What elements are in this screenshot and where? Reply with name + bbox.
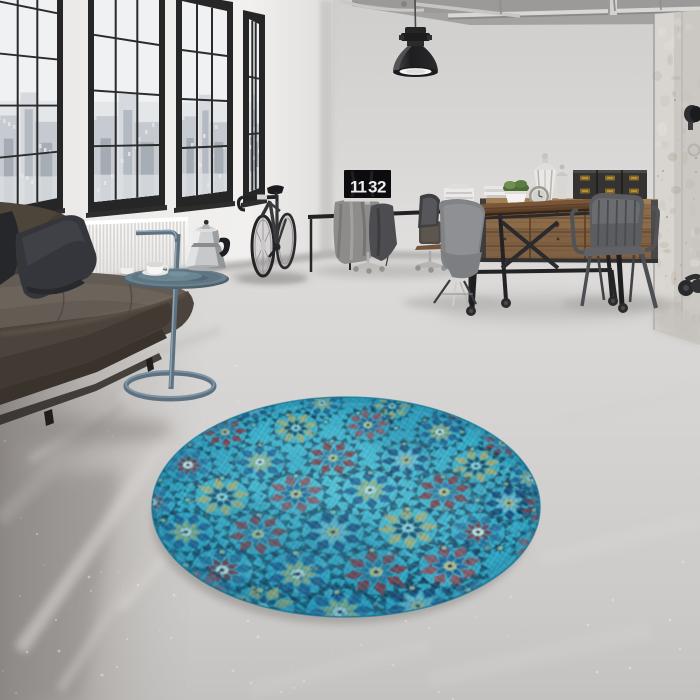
svg-text:32: 32 xyxy=(368,178,386,197)
svg-text:11: 11 xyxy=(350,178,367,197)
